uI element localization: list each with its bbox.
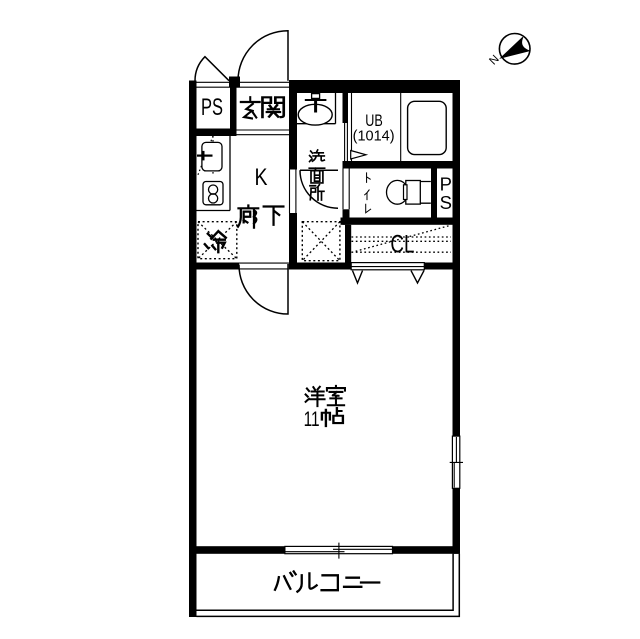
svg-text:PS: PS — [201, 94, 223, 121]
svg-text:11: 11 — [304, 407, 320, 431]
svg-text:(1014): (1014) — [353, 128, 395, 144]
svg-text:S: S — [440, 192, 452, 213]
svg-text:K: K — [255, 164, 268, 191]
svg-text:CL: CL — [390, 230, 414, 258]
